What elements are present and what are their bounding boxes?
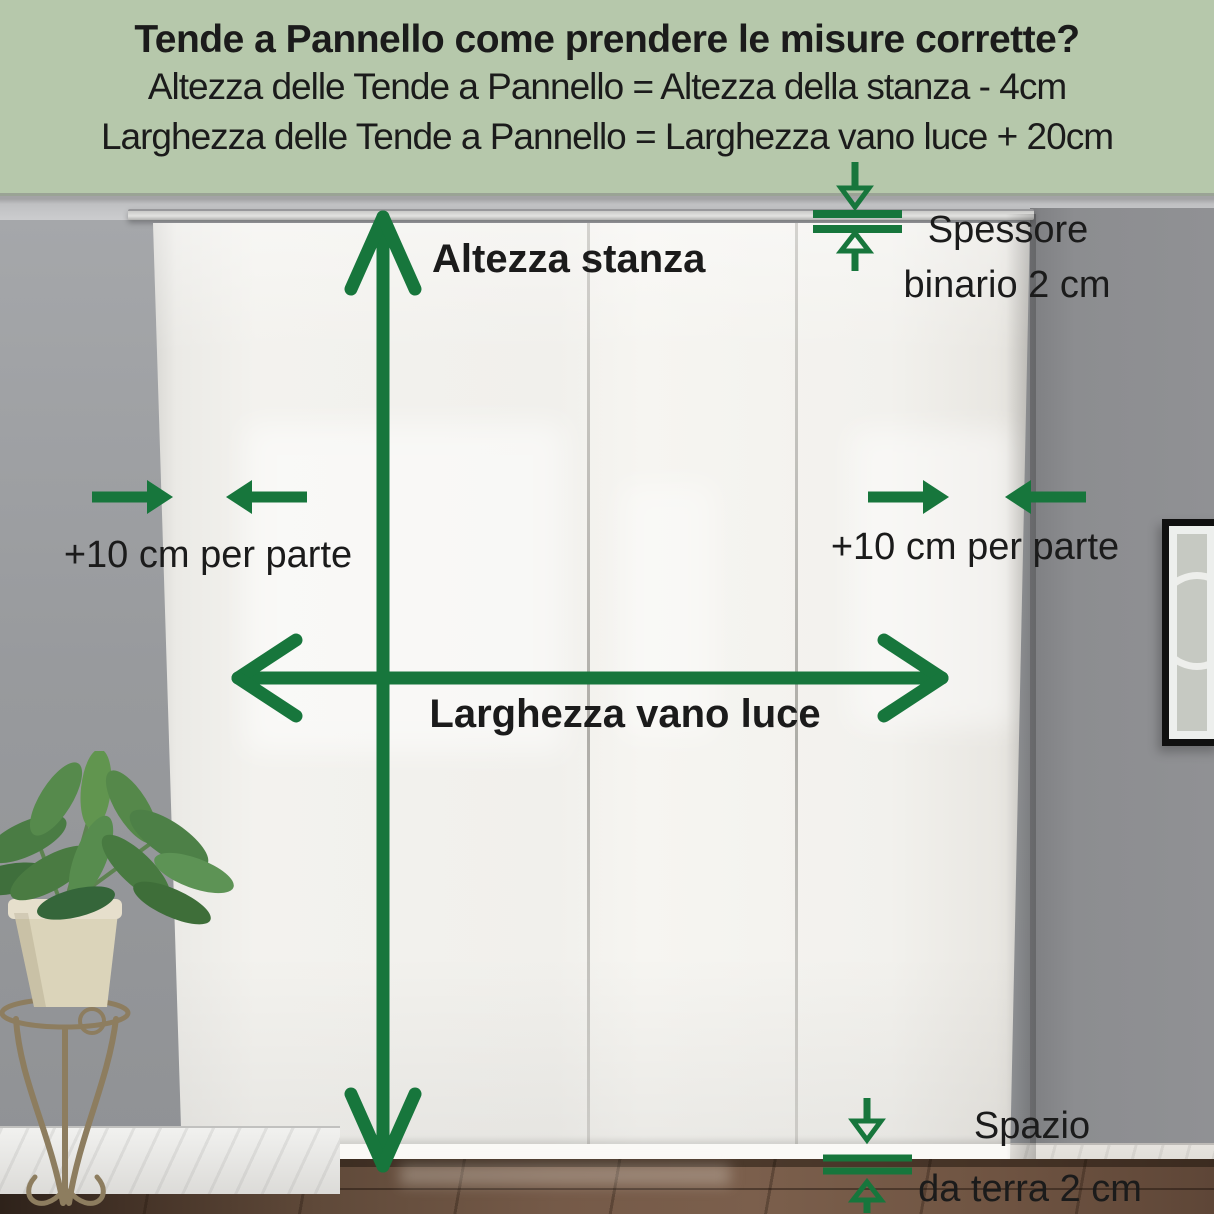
- track-thickness-label-line1: Spessore: [928, 210, 1089, 252]
- side-allowance-right-label: +10 cm per parte: [831, 527, 1119, 569]
- wall-corner-shadow: [1006, 214, 1036, 1164]
- curtain-light-reflection: [850, 428, 1015, 728]
- picture-frame: [1162, 519, 1214, 746]
- room-height-label: Altezza stanza: [432, 237, 705, 281]
- page-title: Tende a Pannello come prendere le misure…: [0, 0, 1214, 62]
- height-formula: Altezza delle Tende a Pannello = Altezza…: [0, 62, 1214, 112]
- opening-width-label: Larghezza vano luce: [429, 692, 820, 736]
- width-formula: Larghezza delle Tende a Pannello = Largh…: [0, 112, 1214, 162]
- curtain-track: [128, 209, 1034, 220]
- track-thickness-label-line2: binario 2 cm: [904, 265, 1111, 307]
- floor-gap-label-line2: da terra 2 cm: [918, 1169, 1142, 1211]
- floor-reflection: [400, 1165, 730, 1185]
- frame-artwork: [1177, 534, 1207, 731]
- floor-gap-label-line1: Spazio: [974, 1106, 1090, 1148]
- artwork-circle: [1177, 572, 1207, 670]
- side-allowance-left-label: +10 cm per parte: [64, 535, 352, 577]
- infographic-page: Tende a Pannello come prendere le misure…: [0, 0, 1214, 1214]
- header-banner: Tende a Pannello come prendere le misure…: [0, 0, 1214, 196]
- potted-plant: [0, 751, 256, 1214]
- plant-stand: [2, 999, 128, 1203]
